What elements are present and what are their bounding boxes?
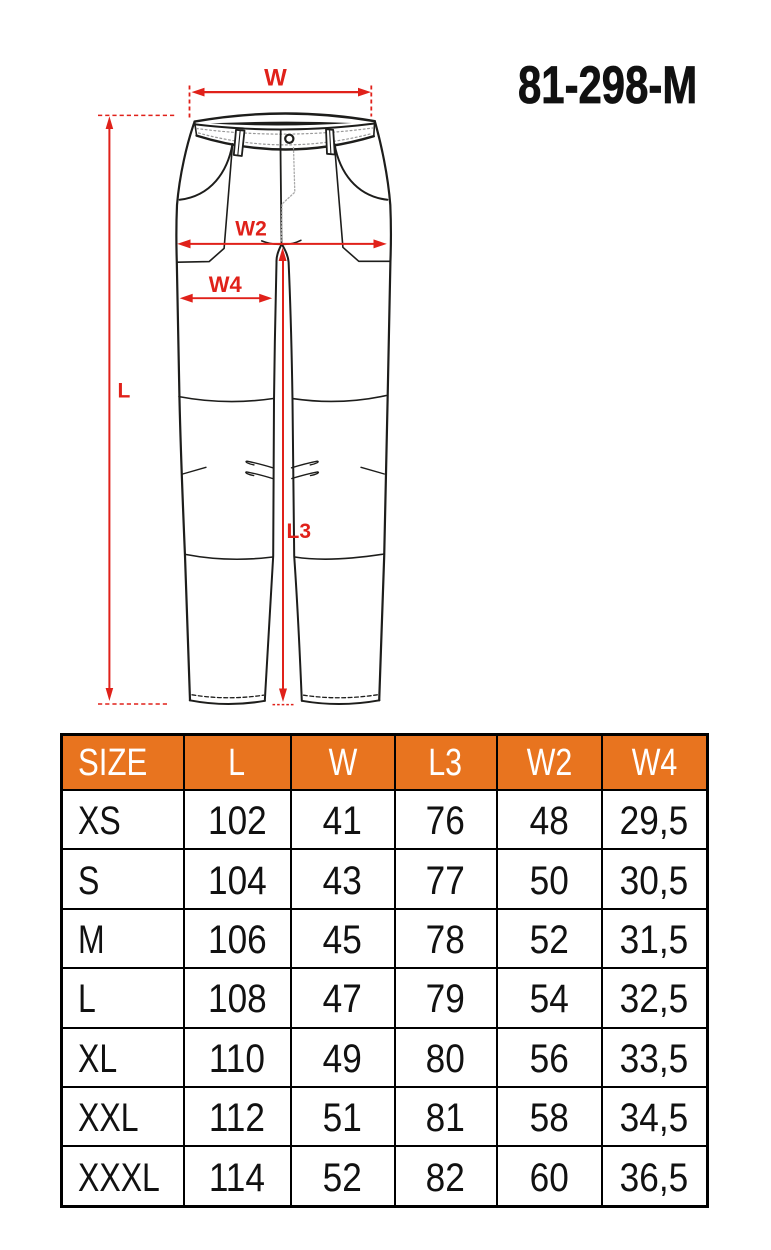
svg-text:W2: W2 <box>235 218 267 241</box>
svg-text:W4: W4 <box>209 272 243 297</box>
svg-text:W: W <box>264 65 287 92</box>
svg-text:L3: L3 <box>287 520 312 543</box>
svg-text:L: L <box>118 380 131 403</box>
